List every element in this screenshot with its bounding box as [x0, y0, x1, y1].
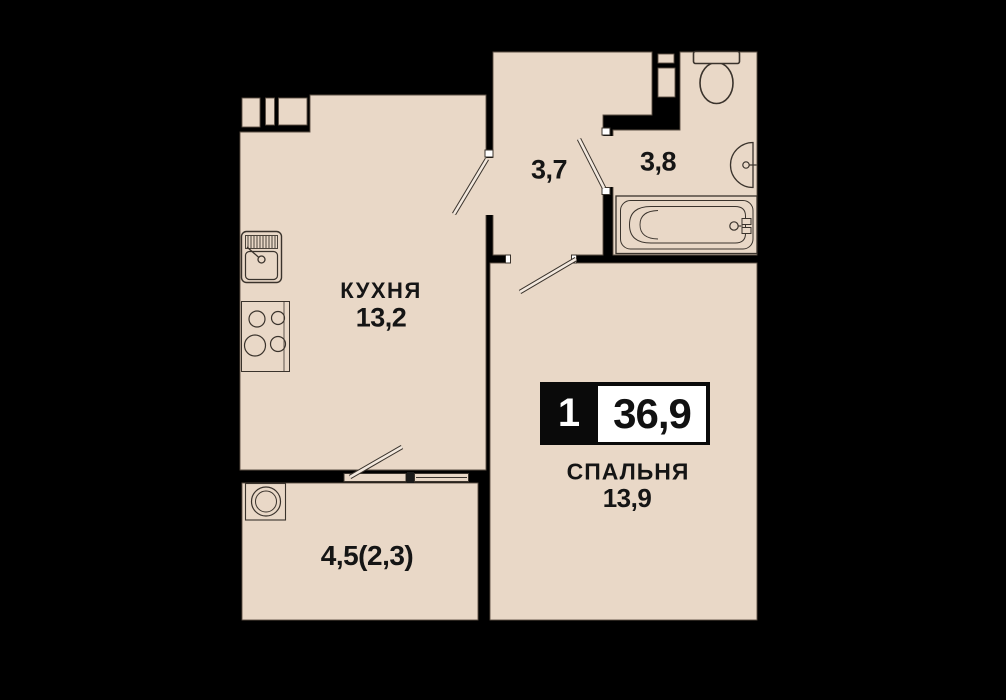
bathroom-doorway — [602, 136, 614, 187]
kitchen-label: КУХНЯ — [340, 280, 422, 302]
washing-machine-icon — [246, 484, 286, 521]
stove-icon — [242, 302, 290, 372]
window-icon — [415, 474, 469, 482]
door-jamb — [602, 128, 610, 135]
door-jamb — [506, 255, 511, 263]
kitchen-area-label: 13,2 — [356, 305, 407, 332]
balcony-area-label: 4,5(2,3) — [321, 542, 414, 570]
kitchen-doorway — [485, 158, 495, 215]
unit-info-badge: 1 36,9 — [540, 382, 710, 445]
door-jamb — [485, 150, 493, 157]
door-jamb — [602, 188, 610, 195]
bedroom-doorway — [506, 254, 574, 264]
kitchen-sink-icon — [242, 232, 282, 283]
rooms-count: 1 — [540, 382, 598, 445]
bedroom-area-label: 13,9 — [603, 485, 652, 511]
total-area-panel: 36,9 — [598, 386, 706, 442]
bathroom-area-label: 3,8 — [640, 149, 676, 176]
vent-shaft-icon — [658, 54, 675, 97]
vent-shaft-icon — [242, 98, 307, 127]
floor-plan-drawing — [0, 0, 1006, 700]
floor-plan-canvas: КУХНЯ 13,2 3,7 3,8 СПАЛЬНЯ 13,9 4,5(2,3)… — [0, 0, 1006, 700]
window-separator — [407, 472, 414, 483]
total-area: 36,9 — [613, 390, 691, 438]
hallway-area-label: 3,7 — [531, 157, 567, 184]
bedroom-label: СПАЛЬНЯ — [567, 461, 690, 484]
bathtub-icon — [616, 196, 757, 254]
